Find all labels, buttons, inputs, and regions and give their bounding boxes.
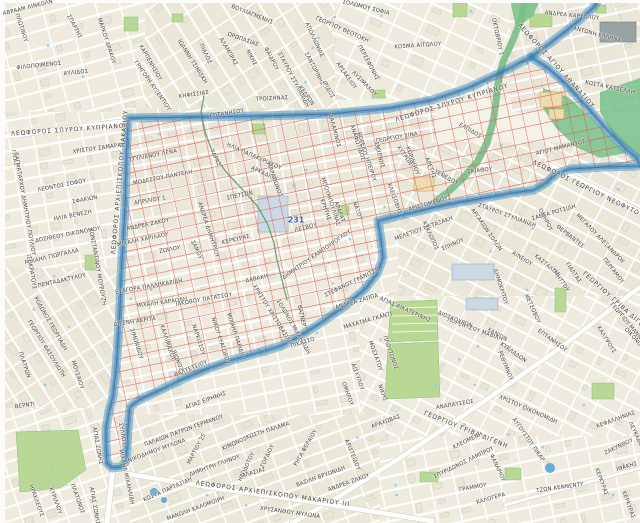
scan-margin-left	[0, 0, 5, 523]
cadastral-block-number: 231	[288, 216, 305, 225]
cadastral-map: ΛΕΩΦΟΡΟΣ ΣΠΥΡΟΥ ΚΥΠΡΙΑΝΟΥΛΕΩΦΟΡΟΣ ΣΠΥΡΟΥ…	[0, 0, 640, 523]
map-drawing	[0, 0, 640, 523]
scan-margin-top	[0, 0, 640, 3]
